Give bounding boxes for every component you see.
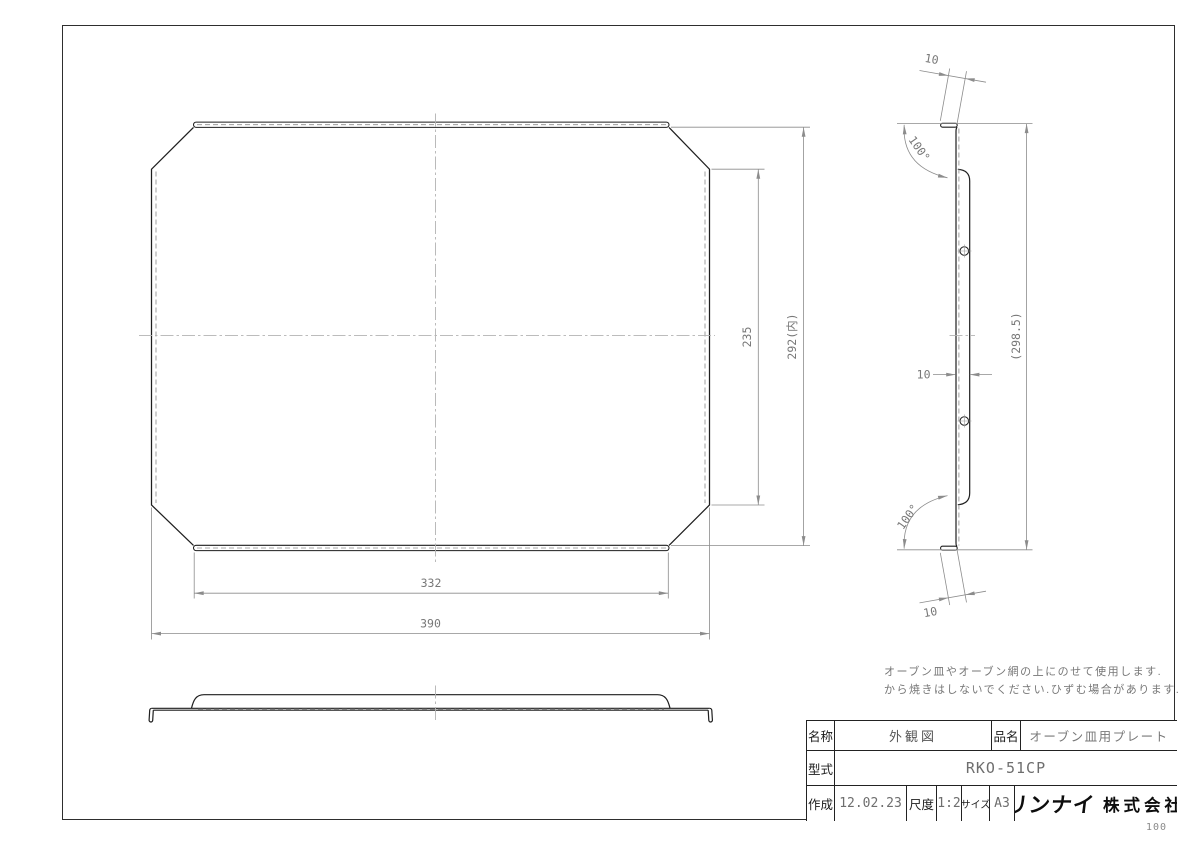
dim-label-332: 332 [421,576,442,590]
created-label: 作成 [808,794,833,813]
created-date: 12.02.23 [839,796,902,811]
company-logo: リンナイ [1014,789,1097,819]
side-sheet-face [956,127,957,546]
name-value-cell: 外観図 [834,721,991,750]
company-cell: リンナイ 株式会社 [1014,786,1177,821]
usage-note-line-1: オーブン皿やオーブン網の上にのせて使用します. [884,663,1180,681]
ext-235 [712,169,765,505]
title-block-row-model: 型式 RKO-51CP [807,750,1177,785]
dim-10-bottom [920,591,987,603]
drawing-type: 外観図 [889,726,937,745]
paper-size: A3 [994,796,1010,811]
front-left-hook [149,708,153,722]
dim-label-235: 235 [740,327,754,348]
front-right-hook [708,708,712,722]
dim-label-10-top: 10 [924,51,940,67]
scale-value-cell: 1:2 [936,786,961,821]
created-label-cell: 作成 [807,786,834,821]
title-block-row-meta: 作成 12.02.23 尺度 1:2 サイズ A3 リンナイ 株式会社 [807,785,1177,821]
dimension-lines [152,69,1033,640]
plan-view [152,122,710,550]
plan-outline [152,127,710,545]
model-label: 型式 [808,759,833,778]
dim-label-298-5: (298.5) [1009,312,1023,360]
company-suffix: 株式会社 [1103,792,1177,816]
centerlines [139,114,975,723]
dimension-labels: 235 292(内) 332 390 (298.5) 10 10 10 100°… [420,51,1023,631]
front-view [149,695,712,722]
title-block: 名称 外観図 品名 オーブン皿用プレート 型式 RKO-51CP 作成 [806,720,1177,821]
scale-label-cell: 尺度 [906,786,936,821]
angle-label-100-bottom: 100° [894,501,921,532]
sheet-number: 100 [1146,822,1167,833]
size-label-cell: サイズ [961,786,989,821]
usage-note-line-2: から焼きはしないでください.ひずむ場合があります. [884,681,1180,699]
size-label: サイズ [961,796,989,811]
angle-label-100-top: 100° [906,133,933,164]
dim-label-10-mid: 10 [917,368,931,382]
front-raised-panel [192,695,671,709]
dim-label-292: 292(内) [785,313,799,359]
name-label: 名称 [808,726,833,745]
scale-value: 1:2 [937,796,960,811]
side-emboss-face [958,169,970,504]
scale-label: 尺度 [909,794,934,813]
model-value-cell: RKO-51CP [834,751,1177,785]
model-label-cell: 型式 [807,751,834,785]
dim-label-390: 390 [420,617,441,631]
dim-10-top [920,71,987,83]
model-number: RKO-51CP [966,759,1046,777]
title-block-row-name: 名称 外観図 品名 オーブン皿用プレート [807,721,1177,750]
side-view [941,123,972,550]
usage-notes: オーブン皿やオーブン網の上にのせて使用します. から焼きはしないでください.ひず… [884,663,1180,699]
product-label: 品名 [993,726,1018,745]
dim-label-10-bottom: 10 [922,604,938,620]
drawing-page: 235 292(内) 332 390 (298.5) 10 10 10 100°… [0,0,1200,848]
size-value-cell: A3 [989,786,1014,821]
name-label-cell: 名称 [807,721,834,750]
product-value-cell: オーブン皿用プレート [1020,721,1177,750]
product-label-cell: 品名 [991,721,1020,750]
plan-hidden-lines [156,125,705,548]
created-value-cell: 12.02.23 [834,786,906,821]
product-name: オーブン皿用プレート [1029,726,1168,745]
